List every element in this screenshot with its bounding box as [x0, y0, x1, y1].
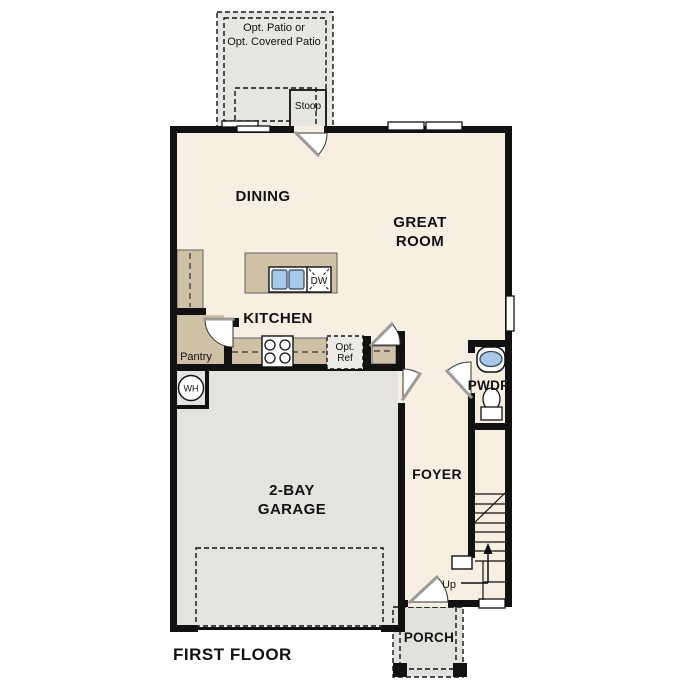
- great-room-label-line2: ROOM: [396, 233, 444, 250]
- garage-door-line: [196, 627, 383, 630]
- floor-plan-drawing: Opt. Patio or Opt. Covered Patio Stoop P…: [0, 0, 687, 687]
- window-dining-slider-b: [237, 126, 270, 132]
- porch-post-left: [393, 663, 407, 677]
- sink-basin-right: [289, 270, 304, 289]
- wall-left: [170, 126, 177, 632]
- window-under-stairs: [479, 599, 505, 608]
- dining-label: DINING: [236, 188, 291, 205]
- toilet-tank: [481, 407, 502, 420]
- pwdr-label: PWDR: [468, 378, 510, 393]
- floor-plan-page: Opt. Patio or Opt. Covered Patio Stoop P…: [0, 0, 687, 687]
- patio-label-line1: Opt. Patio or: [243, 22, 305, 34]
- wall-counter-end-stub: [363, 336, 371, 368]
- porch-post-right: [453, 663, 467, 677]
- wall-garage-right: [398, 364, 405, 632]
- optional-patio-area: Opt. Patio or Opt. Covered Patio Stoop: [217, 12, 333, 127]
- kitchen-label: KITCHEN: [243, 310, 312, 327]
- patio-label-line2: Opt. Covered Patio: [227, 36, 321, 48]
- wall-pantry-top: [170, 308, 206, 315]
- wall-cabinet: [177, 250, 203, 311]
- opening-stoop-door: [294, 126, 324, 133]
- window-right-wall: [506, 296, 514, 331]
- porch-label: PORCH: [404, 630, 454, 645]
- opt-ref-label-line2: Ref: [337, 353, 353, 364]
- first-floor-title: FIRST FLOOR: [173, 645, 292, 664]
- closet-cabinet: [372, 346, 396, 364]
- garage-label-line2: GARAGE: [258, 501, 326, 518]
- wall-right: [505, 126, 512, 607]
- opt-ref-label-line1: Opt.: [336, 342, 355, 353]
- wall-garage-bottom-left-stub: [170, 625, 198, 632]
- garage-label-line1: 2-BAY: [269, 482, 315, 499]
- great-room-label-line1: GREAT: [393, 214, 446, 231]
- up-label: Up: [442, 579, 456, 591]
- sink-basin-left: [272, 270, 287, 289]
- water-heater-label: WH: [184, 384, 199, 394]
- window-greatroom-left: [388, 122, 424, 130]
- pwdr-sink: [480, 352, 502, 367]
- stoop-label: Stoop: [295, 101, 322, 112]
- dishwasher-label: DW: [311, 276, 328, 287]
- stair-rail-end: [452, 556, 472, 569]
- wall-stair-left: [468, 430, 475, 558]
- window-greatroom-right: [426, 122, 462, 130]
- foyer-label: FOYER: [412, 466, 462, 482]
- pantry-label: Pantry: [180, 351, 212, 363]
